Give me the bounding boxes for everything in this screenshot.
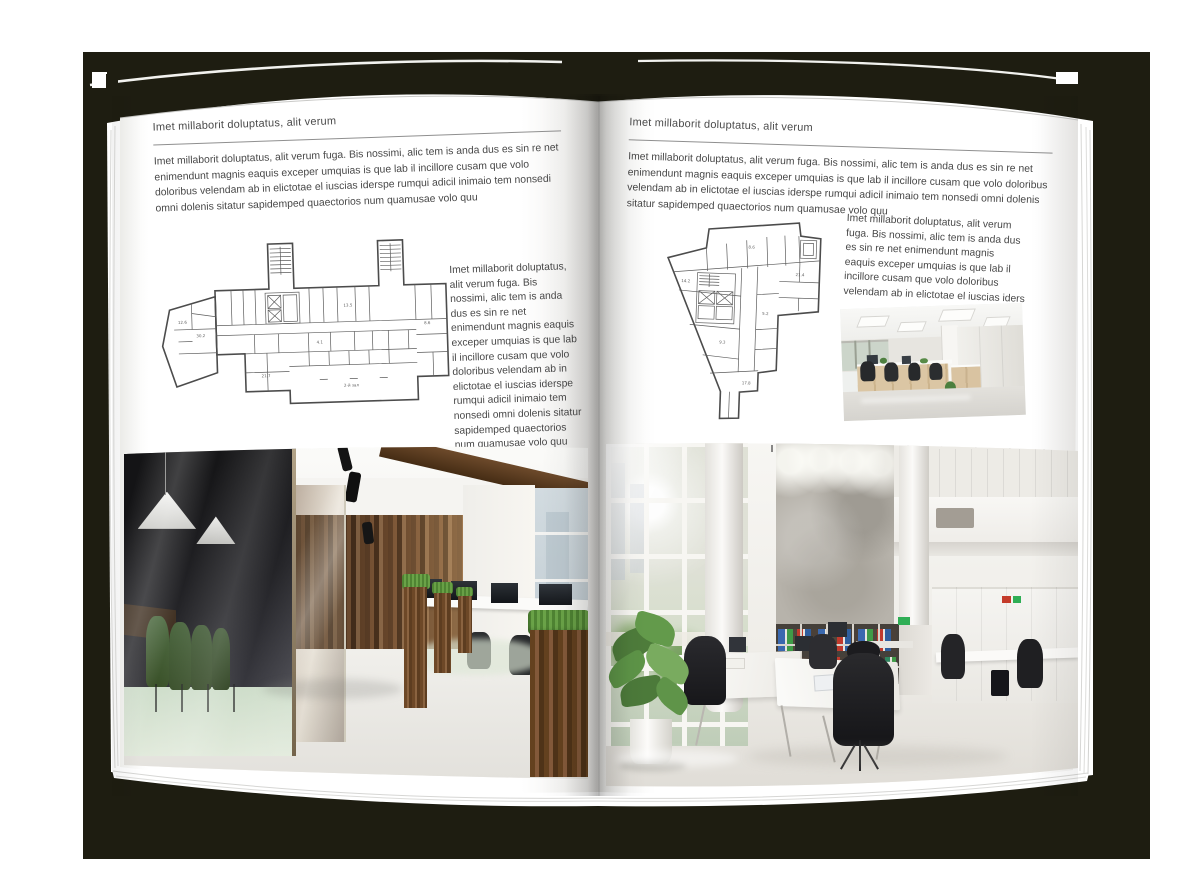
exit-sign — [898, 617, 910, 625]
cover-edge-right — [638, 60, 1088, 83]
irregular-building-floor-plan-drawing: 14.2 8.6 21.4 5.2 9.3 17.8 — [644, 211, 829, 425]
black-mesh-chair-large — [833, 653, 894, 746]
desk-plant — [920, 358, 927, 364]
glass-reflection — [124, 445, 296, 756]
left-intro-paragraph: Imet millaborit doluptatus, alit verum f… — [154, 140, 572, 217]
magazine-mockup-canvas: Imet millaborit doluptatus, alit verum I… — [0, 0, 1200, 891]
plan-room-label: 21.4 — [795, 272, 805, 277]
led-ceiling-panel — [897, 321, 927, 332]
plan-room-label: 8.6 — [748, 244, 755, 249]
plan-room-label: 30.2 — [196, 333, 206, 338]
plan-room-label: 9.3 — [719, 339, 726, 344]
plan-room-label: 17.8 — [742, 380, 752, 385]
black-chair — [929, 363, 942, 380]
glass-partition-reflection — [296, 485, 345, 742]
concrete-feature-wall — [776, 442, 894, 636]
plan-room-label: 4.1 — [317, 339, 324, 344]
left-floor-plan: 12.6 30.2 21.7 13.5 4.1 8.6 2-й зал — [155, 225, 453, 420]
desk-monitor — [729, 637, 746, 652]
office-photo-loft-interior — [606, 442, 1078, 788]
papers-on-desk — [724, 658, 745, 669]
wood-planter — [434, 593, 451, 673]
mezzanine-underside-shadow — [866, 542, 1078, 556]
plan-room-label: 21.7 — [262, 373, 272, 378]
plan-room-label: 12.6 — [178, 320, 188, 325]
black-office-chair — [1017, 639, 1043, 687]
wood-planter — [458, 596, 472, 653]
corridor-doors — [899, 625, 932, 694]
waste-bin — [991, 670, 1009, 696]
right-side-text: Imet millaborit doluptatus, alit verum f… — [843, 212, 1029, 308]
plan-room-label: 13.5 — [343, 302, 353, 307]
safety-sign-red — [1002, 596, 1010, 603]
monitor — [491, 583, 519, 603]
cover-edge-left — [90, 61, 562, 85]
black-mesh-chair — [809, 634, 837, 669]
left-page-header: Imet millaborit doluptatus, alit verum — [152, 115, 336, 133]
left-side-text: Imet millaborit doluptatus, alit verum f… — [449, 260, 583, 454]
black-chair — [860, 361, 875, 382]
plan-room-label: 5.2 — [762, 311, 769, 316]
black-chair — [908, 362, 921, 380]
led-ceiling-panel — [856, 315, 890, 327]
floor-shadow — [263, 679, 402, 699]
wall-vent — [936, 508, 974, 529]
white-wall-right — [463, 485, 535, 645]
floor-green-reflection — [412, 639, 542, 676]
wood-planter — [404, 587, 427, 707]
black-office-chair — [941, 634, 965, 679]
spine-shadow — [564, 94, 630, 796]
left-page-top-content: Imet millaborit doluptatus, alit verum I… — [140, 93, 574, 228]
black-chair — [884, 362, 899, 382]
office-photo-dark-wood-interior — [124, 445, 588, 779]
wide-building-floor-plan-drawing: 12.6 30.2 21.7 13.5 4.1 8.6 2-й зал — [155, 225, 453, 420]
office-photo-open-space — [840, 303, 1026, 421]
plan-hall-label: 2-й зал — [344, 382, 360, 387]
plan-room-label: 8.6 — [424, 320, 431, 325]
right-floor-plan: 14.2 8.6 21.4 5.2 9.3 17.8 — [644, 211, 829, 425]
safety-sign-green — [1013, 596, 1021, 603]
right-page-header: Imet millaborit doluptatus, alit verum — [629, 116, 813, 134]
plan-room-label: 14.2 — [681, 278, 691, 283]
glass-meeting-room — [124, 445, 296, 756]
led-ceiling-panel — [938, 309, 976, 322]
black-mesh-chair — [684, 636, 726, 705]
